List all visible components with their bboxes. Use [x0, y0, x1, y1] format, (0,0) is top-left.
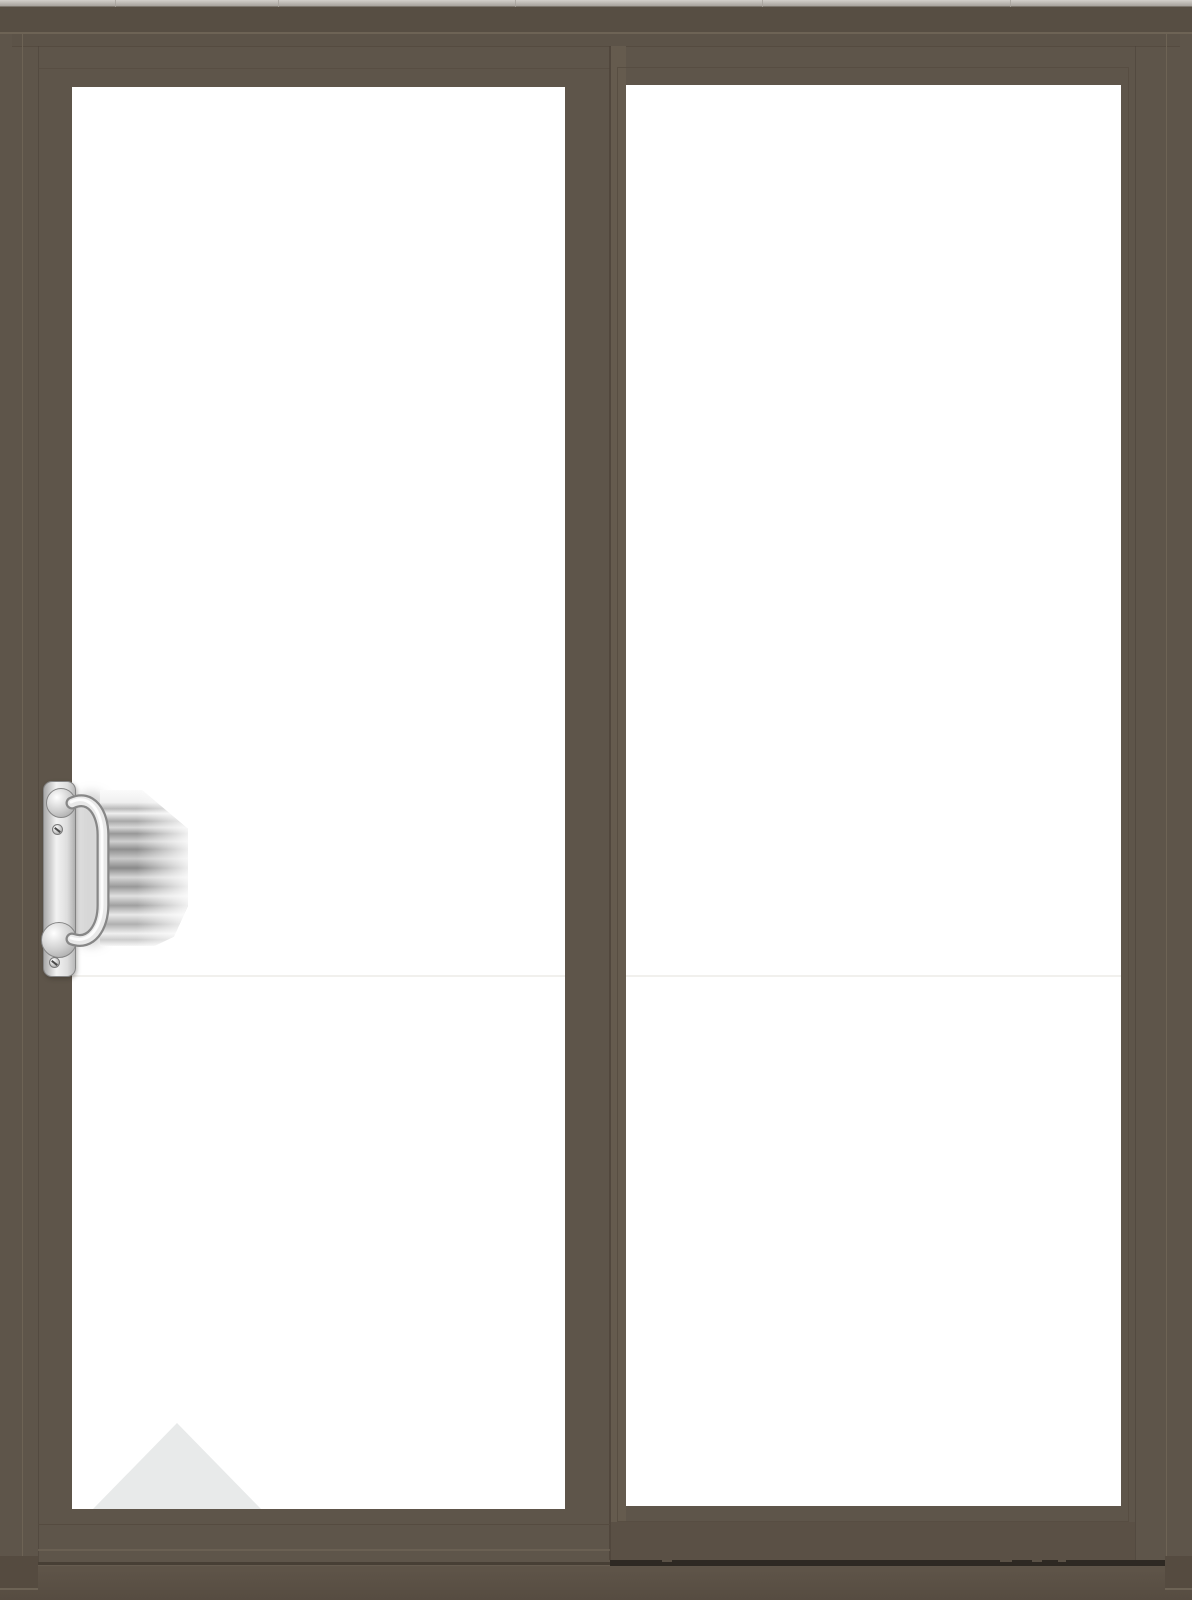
- right-jamb-foot: [1165, 1556, 1192, 1590]
- glass-reflection-line: [626, 975, 1121, 977]
- patio-door-product-image: [0, 0, 1192, 1600]
- sliding-panel-top-rail-bevel: [38, 68, 610, 69]
- sliding-panel-bottom-rail-bevel: [38, 1524, 610, 1525]
- track-notch: [662, 1560, 672, 1562]
- track-notch: [1058, 1560, 1066, 1562]
- glass-reflection-triangle: [93, 1423, 261, 1509]
- left-jamb-foot: [0, 1556, 38, 1590]
- frame-top-seam: [115, 0, 116, 7]
- left-jamb-bevel: [22, 33, 23, 1588]
- right-jamb-bevel: [1166, 33, 1167, 1588]
- frame-top-seam: [762, 0, 763, 7]
- sliding-panel-bottom-rail-highlight: [38, 1549, 610, 1551]
- track-notch: [1032, 1560, 1042, 1562]
- frame-head-inner: [12, 34, 1180, 47]
- handle-pull-icon: [60, 780, 116, 960]
- handle-screw-bottom: [49, 957, 60, 968]
- sill-track-left: [38, 1562, 610, 1565]
- left-panel-stile-seam: [38, 46, 39, 1562]
- frame-top-edge: [0, 0, 1192, 7]
- door-handle: [40, 778, 190, 984]
- screw-slot: [51, 960, 58, 966]
- center-stile-seam: [609, 46, 611, 1560]
- frame-top-seam: [1010, 0, 1011, 7]
- door-sill: [0, 1566, 1192, 1600]
- frame-head: [0, 7, 1192, 34]
- right-glass-pane: [626, 85, 1121, 1506]
- frame-top-seam: [515, 0, 516, 7]
- right-panel-stile-seam: [1135, 46, 1136, 1562]
- track-notch: [1000, 1560, 1012, 1562]
- fixed-panel-bottom-rail: [611, 1522, 1135, 1560]
- frame-top-seam: [278, 0, 279, 7]
